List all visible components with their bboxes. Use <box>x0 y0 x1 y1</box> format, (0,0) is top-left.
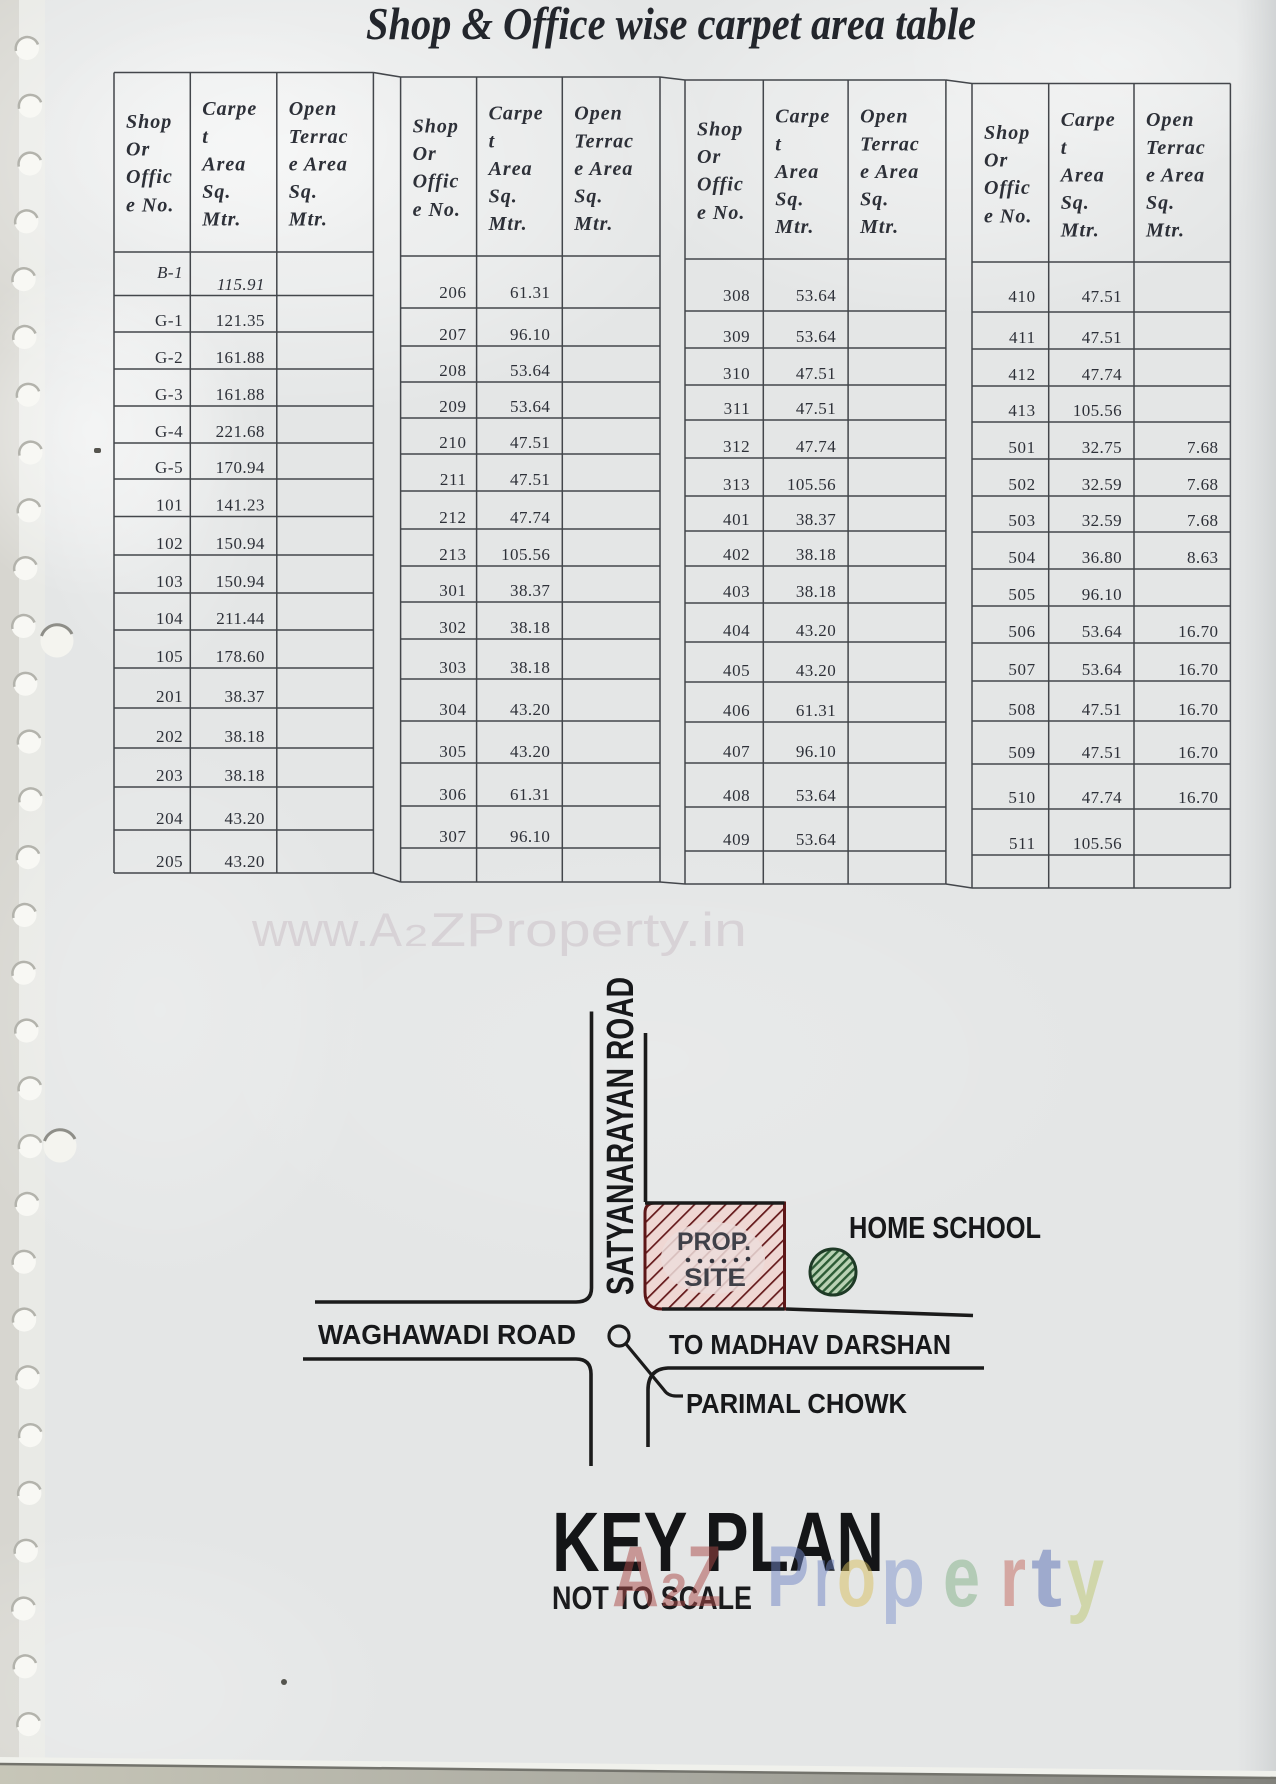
svg-text:53.64: 53.64 <box>510 397 550 416</box>
svg-text:407: 407 <box>723 742 750 761</box>
svg-text:Mtr.: Mtr. <box>201 209 241 231</box>
svg-text:t: t <box>489 130 496 152</box>
svg-text:161.88: 161.88 <box>216 385 265 404</box>
svg-text:504: 504 <box>1008 548 1035 567</box>
svg-text:Or: Or <box>984 150 1008 172</box>
svg-text:TO MADHAV DARSHAN: TO MADHAV DARSHAN <box>669 1329 951 1360</box>
svg-text:Sq.: Sq. <box>202 181 231 203</box>
svg-text:53.64: 53.64 <box>796 286 836 305</box>
svg-text:406: 406 <box>723 701 750 720</box>
svg-text:47.51: 47.51 <box>1082 743 1122 762</box>
svg-text:510: 510 <box>1008 788 1035 807</box>
svg-text:47.51: 47.51 <box>796 364 836 383</box>
svg-text:Or: Or <box>126 139 150 161</box>
svg-text:105.56: 105.56 <box>1073 834 1122 853</box>
svg-text:38.18: 38.18 <box>796 545 836 564</box>
svg-text:e Area: e Area <box>1146 164 1205 186</box>
svg-text:Area: Area <box>200 153 246 175</box>
svg-text:205: 205 <box>156 852 183 871</box>
svg-text:Offic: Offic <box>126 166 173 188</box>
svg-text:32.59: 32.59 <box>1082 511 1122 530</box>
svg-text:A: A <box>612 1529 659 1625</box>
svg-text:38.37: 38.37 <box>510 581 550 600</box>
svg-text:Mtr.: Mtr. <box>774 216 814 238</box>
svg-text:509: 509 <box>1008 743 1035 762</box>
svg-text:53.64: 53.64 <box>796 327 836 346</box>
svg-text:38.18: 38.18 <box>225 727 265 746</box>
svg-text:16.70: 16.70 <box>1178 743 1218 762</box>
svg-text:503: 503 <box>1008 511 1035 530</box>
svg-text:WAGHAWADI ROAD: WAGHAWADI ROAD <box>318 1319 576 1350</box>
svg-text:16.70: 16.70 <box>1178 622 1218 641</box>
svg-text:16.70: 16.70 <box>1178 700 1218 719</box>
svg-text:8.63: 8.63 <box>1187 548 1218 567</box>
svg-text:303: 303 <box>439 658 466 677</box>
svg-text:150.94: 150.94 <box>216 572 265 591</box>
svg-text:141.23: 141.23 <box>216 496 265 515</box>
svg-text:38.18: 38.18 <box>796 582 836 601</box>
svg-text:150.94: 150.94 <box>216 534 265 553</box>
svg-text:43.20: 43.20 <box>796 661 836 680</box>
svg-text:47.51: 47.51 <box>796 399 836 418</box>
svg-text:305: 305 <box>439 742 466 761</box>
svg-text:Or: Or <box>413 143 437 165</box>
svg-text:102: 102 <box>156 534 183 553</box>
svg-text:o: o <box>837 1529 876 1625</box>
svg-text:501: 501 <box>1008 438 1035 457</box>
svg-text:7.68: 7.68 <box>1187 475 1218 494</box>
svg-text:Shop & Office wise carpet area: Shop & Office wise carpet area table <box>366 0 976 49</box>
svg-text:Sq.: Sq. <box>574 186 603 208</box>
svg-text:401: 401 <box>723 510 750 529</box>
svg-text:SITE: SITE <box>684 1264 746 1292</box>
svg-text:208: 208 <box>439 361 466 380</box>
svg-text:161.88: 161.88 <box>216 348 265 367</box>
svg-text:411: 411 <box>1009 328 1036 347</box>
svg-text:43.20: 43.20 <box>225 852 265 871</box>
svg-text:38.37: 38.37 <box>225 687 265 706</box>
svg-text:313: 313 <box>723 475 750 494</box>
svg-text:38.18: 38.18 <box>510 618 550 637</box>
svg-text:105.56: 105.56 <box>787 475 836 494</box>
svg-text:53.64: 53.64 <box>510 361 550 380</box>
svg-text:G-4: G-4 <box>155 422 183 441</box>
svg-text:209: 209 <box>439 397 466 416</box>
svg-text:Carpe: Carpe <box>202 98 257 120</box>
svg-text:53.64: 53.64 <box>1082 660 1122 679</box>
svg-text:101: 101 <box>156 496 183 515</box>
svg-text:Terrac: Terrac <box>1146 137 1206 159</box>
svg-text:206: 206 <box>439 283 466 302</box>
svg-text:P: P <box>767 1529 809 1625</box>
svg-text:47.74: 47.74 <box>1082 788 1122 807</box>
svg-text:47.51: 47.51 <box>1082 287 1122 306</box>
svg-text:HOME SCHOOL: HOME SCHOOL <box>849 1210 1041 1245</box>
svg-text:43.20: 43.20 <box>796 621 836 640</box>
svg-text:43.20: 43.20 <box>510 700 550 719</box>
svg-text:Sq.: Sq. <box>289 181 318 203</box>
svg-text:Carpe: Carpe <box>1061 109 1116 131</box>
svg-text:e Area: e Area <box>574 158 633 180</box>
svg-text:y: y <box>1067 1529 1104 1625</box>
svg-text:Terrac: Terrac <box>860 133 920 155</box>
svg-text:47.74: 47.74 <box>796 437 836 456</box>
svg-text:Mtr.: Mtr. <box>1060 220 1100 242</box>
svg-text:G-2: G-2 <box>155 348 183 367</box>
svg-text:Area: Area <box>773 161 819 183</box>
svg-text:e No.: e No. <box>126 195 174 217</box>
svg-text:G-3: G-3 <box>155 385 183 404</box>
svg-text:211.44: 211.44 <box>216 609 265 628</box>
svg-text:G-1: G-1 <box>155 311 183 330</box>
svg-text:61.31: 61.31 <box>796 701 836 720</box>
svg-text:38.37: 38.37 <box>796 510 836 529</box>
svg-text:43.20: 43.20 <box>510 742 550 761</box>
svg-text:61.31: 61.31 <box>510 785 550 804</box>
svg-text:e No.: e No. <box>697 202 745 224</box>
svg-text:ZProperty.in: ZProperty.in <box>430 903 747 956</box>
svg-text:7.68: 7.68 <box>1187 511 1218 530</box>
svg-text:96.10: 96.10 <box>1082 585 1122 604</box>
svg-text:212: 212 <box>439 508 466 527</box>
svg-text:Open: Open <box>860 106 908 128</box>
svg-text:302: 302 <box>439 618 466 637</box>
svg-text:Offic: Offic <box>697 174 744 196</box>
svg-text:Area: Area <box>1059 164 1105 186</box>
svg-text:210: 210 <box>439 433 466 452</box>
svg-text:Open: Open <box>289 98 337 120</box>
svg-text:47.51: 47.51 <box>1082 700 1122 719</box>
svg-text:PROP.: PROP. <box>677 1228 751 1256</box>
svg-text:r: r <box>814 1529 835 1625</box>
svg-text:SATYANARAYAN ROAD: SATYANARAYAN ROAD <box>600 977 642 1295</box>
svg-text:www.A: www.A <box>251 903 403 956</box>
svg-text:Sq.: Sq. <box>860 189 889 211</box>
svg-text:Mtr.: Mtr. <box>288 209 328 231</box>
svg-text:178.60: 178.60 <box>216 647 265 666</box>
svg-text:61.31: 61.31 <box>510 283 550 302</box>
svg-text:Offic: Offic <box>984 177 1031 199</box>
svg-text:PARIMAL CHOWK: PARIMAL CHOWK <box>686 1388 907 1419</box>
svg-text:47.51: 47.51 <box>510 433 550 452</box>
svg-text:409: 409 <box>723 830 750 849</box>
svg-text:p: p <box>881 1529 925 1625</box>
svg-text:96.10: 96.10 <box>796 742 836 761</box>
svg-text:53.64: 53.64 <box>1082 622 1122 641</box>
svg-text:Shop: Shop <box>984 122 1030 144</box>
svg-text:2: 2 <box>404 918 428 953</box>
svg-text:96.10: 96.10 <box>510 827 550 846</box>
svg-text:307: 307 <box>439 827 466 846</box>
svg-text:e No.: e No. <box>413 199 461 221</box>
svg-text:306: 306 <box>439 785 466 804</box>
svg-text:404: 404 <box>723 621 750 640</box>
svg-text:38.18: 38.18 <box>510 658 550 677</box>
svg-text:r: r <box>1000 1529 1026 1625</box>
svg-text:105.56: 105.56 <box>1073 401 1122 420</box>
svg-text:508: 508 <box>1008 700 1035 719</box>
svg-text:Carpe: Carpe <box>775 106 830 128</box>
svg-text:Terrac: Terrac <box>574 130 634 152</box>
svg-text:Open: Open <box>574 103 622 125</box>
svg-text:32.59: 32.59 <box>1082 475 1122 494</box>
svg-text:104: 104 <box>156 609 183 628</box>
svg-text:103: 103 <box>156 572 183 591</box>
svg-text:221.68: 221.68 <box>216 422 265 441</box>
svg-text:53.64: 53.64 <box>796 786 836 805</box>
svg-text:Z: Z <box>687 1529 721 1625</box>
svg-text:502: 502 <box>1008 475 1035 494</box>
svg-text:e Area: e Area <box>289 153 348 175</box>
svg-text:G-5: G-5 <box>155 458 183 477</box>
svg-text:105.56: 105.56 <box>501 545 550 564</box>
svg-text:Mtr.: Mtr. <box>488 213 528 235</box>
svg-text:511: 511 <box>1009 834 1036 853</box>
svg-text:Carpe: Carpe <box>489 103 544 125</box>
svg-text:405: 405 <box>723 661 750 680</box>
svg-text:47.51: 47.51 <box>1082 328 1122 347</box>
svg-text:96.10: 96.10 <box>510 325 550 344</box>
svg-text:412: 412 <box>1008 365 1035 384</box>
svg-text:Terrac: Terrac <box>289 126 349 148</box>
svg-text:Mtr.: Mtr. <box>1145 220 1185 242</box>
svg-text:213: 213 <box>439 545 466 564</box>
svg-text:308: 308 <box>723 286 750 305</box>
svg-text:t: t <box>775 133 782 155</box>
svg-text:47.74: 47.74 <box>1082 365 1122 384</box>
svg-text:311: 311 <box>724 399 751 418</box>
svg-text:Or: Or <box>697 146 721 168</box>
svg-text:47.51: 47.51 <box>510 470 550 489</box>
svg-text:t: t <box>1061 137 1068 159</box>
svg-text:403: 403 <box>723 582 750 601</box>
svg-text:310: 310 <box>723 364 750 383</box>
svg-text:204: 204 <box>156 809 183 828</box>
svg-text:16.70: 16.70 <box>1178 660 1218 679</box>
svg-text:410: 410 <box>1008 287 1035 306</box>
svg-text:53.64: 53.64 <box>796 830 836 849</box>
svg-text:32.75: 32.75 <box>1082 438 1122 457</box>
svg-text:Mtr.: Mtr. <box>573 213 613 235</box>
svg-text:Shop: Shop <box>126 111 172 133</box>
svg-text:47.74: 47.74 <box>510 508 550 527</box>
svg-text:312: 312 <box>723 437 750 456</box>
svg-text:121.35: 121.35 <box>216 311 265 330</box>
svg-text:2: 2 <box>661 1564 687 1616</box>
svg-text:203: 203 <box>156 766 183 785</box>
svg-text:B-1: B-1 <box>157 263 183 282</box>
svg-text:207: 207 <box>439 325 466 344</box>
svg-text:507: 507 <box>1008 660 1035 679</box>
svg-text:506: 506 <box>1008 622 1035 641</box>
svg-text:211: 211 <box>440 470 467 489</box>
svg-text:Mtr.: Mtr. <box>859 216 899 238</box>
svg-text:e Area: e Area <box>860 161 919 183</box>
svg-text:115.91: 115.91 <box>217 275 265 294</box>
svg-text:201: 201 <box>156 687 183 706</box>
svg-text:t: t <box>202 126 209 148</box>
svg-text:t: t <box>1031 1529 1062 1625</box>
svg-text:Sq.: Sq. <box>775 189 804 211</box>
svg-text:36.80: 36.80 <box>1082 548 1122 567</box>
svg-text:Sq.: Sq. <box>489 186 518 208</box>
svg-text:408: 408 <box>723 786 750 805</box>
svg-text:e No.: e No. <box>984 206 1032 228</box>
svg-text:202: 202 <box>156 727 183 746</box>
svg-text:Area: Area <box>487 158 533 180</box>
svg-text:Offic: Offic <box>413 171 460 193</box>
svg-text:301: 301 <box>439 581 466 600</box>
svg-text:413: 413 <box>1008 401 1035 420</box>
svg-text:402: 402 <box>723 545 750 564</box>
svg-text:16.70: 16.70 <box>1178 788 1218 807</box>
svg-text:Shop: Shop <box>697 119 743 141</box>
svg-text:e: e <box>943 1529 980 1625</box>
svg-text:304: 304 <box>439 700 466 719</box>
svg-text:105: 105 <box>156 647 183 666</box>
svg-text:Sq.: Sq. <box>1061 192 1090 214</box>
svg-text:170.94: 170.94 <box>216 458 265 477</box>
svg-text:38.18: 38.18 <box>225 766 265 785</box>
svg-text:505: 505 <box>1008 585 1035 604</box>
svg-text:43.20: 43.20 <box>225 809 265 828</box>
svg-text:Open: Open <box>1146 109 1194 131</box>
svg-text:Sq.: Sq. <box>1146 192 1175 214</box>
svg-text:7.68: 7.68 <box>1187 438 1218 457</box>
svg-text:Shop: Shop <box>413 116 459 138</box>
svg-text:309: 309 <box>723 327 750 346</box>
